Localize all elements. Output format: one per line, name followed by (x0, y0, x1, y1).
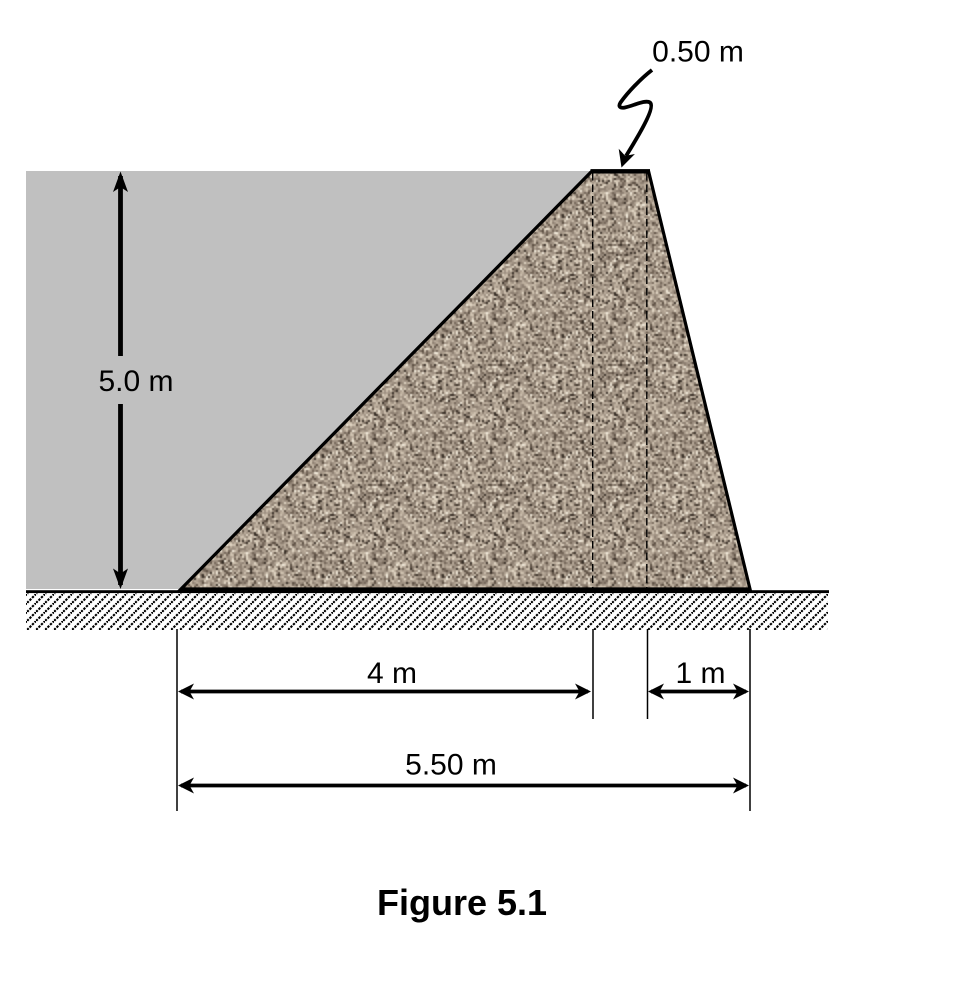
svg-text:1 m: 1 m (675, 657, 725, 690)
svg-text:0.50 m: 0.50 m (652, 36, 744, 69)
svg-text:5.0 m: 5.0 m (98, 365, 173, 398)
svg-text:4 m: 4 m (367, 657, 417, 690)
svg-text:5.50 m: 5.50 m (405, 749, 497, 782)
svg-text:Figure 5.1: Figure 5.1 (377, 882, 547, 923)
